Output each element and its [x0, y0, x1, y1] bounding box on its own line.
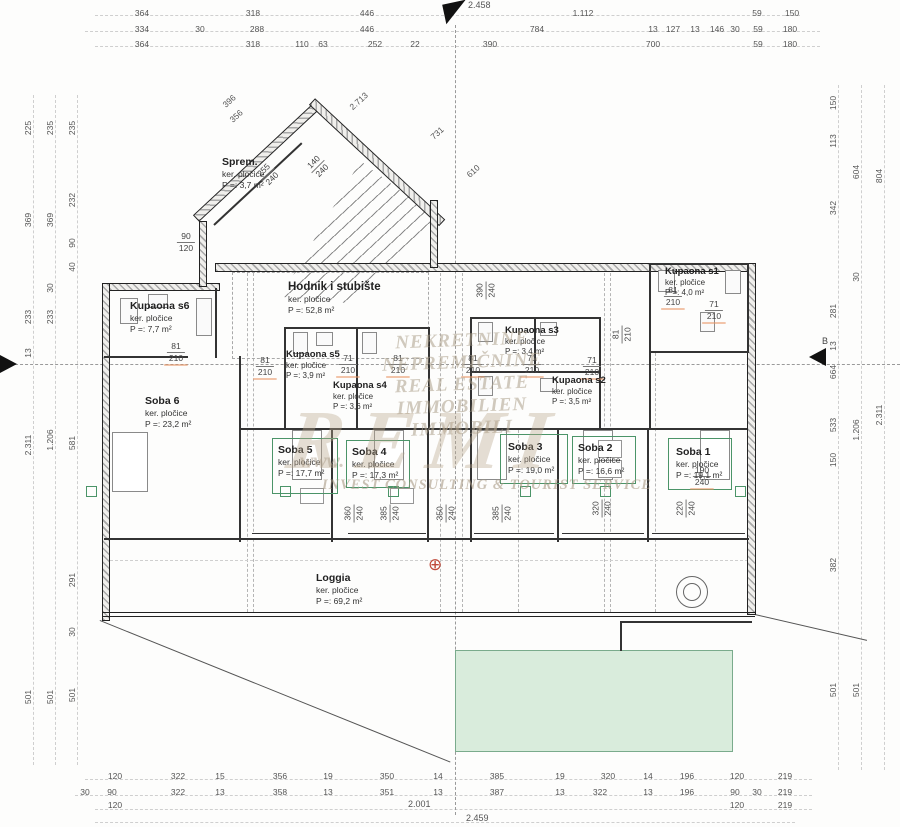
dim-guide — [33, 95, 34, 765]
dim-label: 356 — [273, 771, 287, 781]
dim-label: 322 — [171, 787, 185, 797]
dim-label: 90 — [107, 787, 116, 797]
dim-label: 281 — [828, 304, 838, 318]
section-label-b: B — [822, 336, 828, 346]
dim-label: 291 — [67, 573, 77, 587]
terrace-step — [620, 621, 752, 623]
dim-label: 235 — [67, 121, 77, 135]
wall-left — [102, 283, 110, 621]
dim-label: 533 — [828, 418, 838, 432]
dim-label: 63 — [318, 39, 327, 49]
floor-plan: Zeleni krov P =: 29,8 m² ⊕ Sprem. ker. p… — [0, 0, 900, 827]
dim-label: 604 — [851, 165, 861, 179]
dim-label: 342 — [828, 201, 838, 215]
dim-label: 382 — [828, 558, 838, 572]
window-dim: 350240 — [436, 506, 457, 520]
wall-wing-stub-right — [430, 200, 438, 268]
opening-dim: 90120 — [179, 232, 193, 253]
door-dim: 81210 — [258, 356, 272, 377]
dim-label: 219 — [778, 771, 792, 781]
watermark-prefix: www. — [300, 450, 344, 473]
dim-label: 350 — [380, 771, 394, 781]
dim-label: 232 — [67, 193, 77, 207]
room-label-kupaona-s5: Kupaona s5 ker. pločice P =: 3,9 m² — [286, 349, 340, 381]
dim-label: 30 — [730, 24, 739, 34]
dim-label: 180 — [783, 24, 797, 34]
opening-dim: 140240 — [306, 154, 331, 179]
dim-label: 225 — [23, 121, 33, 135]
dim-label: 30 — [195, 24, 204, 34]
room-label-hodnik: Hodnik i stubište ker. pločice P =: 52,8… — [288, 280, 381, 316]
watermark-brand: REMI — [281, 392, 570, 489]
dim-label: 288 — [250, 24, 264, 34]
room-label-loggia: Loggia ker. pločice P =: 69,2 m² — [316, 572, 362, 606]
room-label-kupaona-s6: Kupaona s6 ker. pločice P =: 7,7 m² — [130, 300, 190, 334]
dim-label: 30 — [851, 272, 861, 281]
dim-label: 30 — [752, 787, 761, 797]
dim-label: 90 — [730, 787, 739, 797]
dim-label: 1.206 — [45, 429, 55, 450]
dim-label: 13 — [828, 341, 838, 350]
dim-label: 322 — [593, 787, 607, 797]
dim-label: 369 — [23, 213, 33, 227]
dim-label: 22 — [410, 39, 419, 49]
dim-label: 610 — [464, 163, 481, 180]
room-label-soba1: Soba 1 ker. pločice P =: 19,1 m² — [676, 446, 722, 480]
dim-total-bottom: 2.459 — [466, 813, 489, 823]
projection-line — [655, 353, 656, 612]
section-marker-top — [442, 0, 470, 24]
room-label-soba6: Soba 6 ker. pločice P =: 23,2 m² — [145, 395, 191, 429]
dim-label: 804 — [874, 169, 884, 183]
dim-label: 358 — [273, 787, 287, 797]
radiator-marker — [86, 486, 97, 497]
wall-wing-stub-left — [199, 221, 207, 287]
opening-dim: 390240 — [476, 283, 497, 297]
section-marker-right — [809, 348, 826, 366]
dim-label: 2.311 — [874, 405, 884, 426]
dim-guide — [861, 85, 862, 770]
dim-label: 150 — [828, 453, 838, 467]
dim-label: 30 — [80, 787, 89, 797]
window — [474, 533, 554, 539]
dim-label: 19 — [555, 771, 564, 781]
dim-label: 150 — [828, 96, 838, 110]
dim-label: 15 — [215, 771, 224, 781]
dim-label: 387 — [490, 787, 504, 797]
dim-label: 390 — [483, 39, 497, 49]
section-marker-left — [0, 355, 17, 373]
bath-fixture — [316, 332, 333, 346]
dim-label: 14 — [643, 771, 652, 781]
dim-label: 396 — [220, 93, 237, 110]
dim-label: 235 — [45, 121, 55, 135]
dim-label: 501 — [45, 690, 55, 704]
dim-label: 501 — [67, 688, 77, 702]
door-dim: 81210 — [466, 354, 480, 375]
dim-label: 501 — [851, 683, 861, 697]
dim-label: 19 — [323, 771, 332, 781]
dim-label: 369 — [45, 213, 55, 227]
dim-guide — [884, 85, 885, 770]
dim-label: 318 — [246, 8, 260, 18]
bath-fixture — [362, 332, 377, 354]
dim-label: 501 — [23, 690, 33, 704]
dim-label: 30 — [67, 627, 77, 636]
dim-label: 446 — [360, 8, 374, 18]
dim-label: 13 — [23, 348, 33, 357]
dim-label: 14 — [433, 771, 442, 781]
door-dim: 81210 — [391, 354, 405, 375]
window — [562, 533, 644, 539]
room-label-kupaona-s3: Kupaona s3 ker. pločice P =: 3,4 m² — [505, 325, 559, 357]
green-roof-area — [455, 650, 733, 752]
wall-s6-right — [215, 288, 217, 358]
dim-guide — [75, 795, 812, 796]
window-dim: 385240 — [380, 506, 401, 520]
dim-label: 252 — [368, 39, 382, 49]
room-label-kupaona-s1: Kupaona s1 ker. pločice P =: 4,0 m² — [665, 266, 719, 298]
window — [348, 533, 426, 539]
door-dim: 81210 — [169, 342, 183, 363]
dim-label: 120 — [730, 800, 744, 810]
door-dim: 71210 — [585, 356, 599, 377]
dim-label: 150 — [785, 8, 799, 18]
dim-guide — [77, 95, 78, 765]
dim-label: 13 — [643, 787, 652, 797]
dim-label: 120 — [730, 771, 744, 781]
window — [252, 533, 330, 539]
wall-hall-right — [649, 353, 651, 430]
dim-guide — [95, 822, 795, 823]
dim-label: 501 — [828, 683, 838, 697]
section-axis-horizontal — [0, 364, 900, 365]
dim-subtotal-bottom: 2.001 — [408, 799, 431, 809]
site-boundary-line — [755, 614, 867, 641]
dim-label: 120 — [108, 771, 122, 781]
dim-label: 110 — [295, 39, 309, 49]
bed — [112, 432, 148, 492]
dim-label: 13 — [648, 24, 657, 34]
drain-circle-inner — [683, 583, 701, 601]
window-dim: 220240 — [676, 501, 697, 515]
dim-label: 59 — [753, 39, 762, 49]
dim-label: 233 — [45, 310, 55, 324]
window-dim: 360240 — [344, 506, 365, 520]
dim-label: 233 — [23, 310, 33, 324]
window-dim: 385240 — [492, 506, 513, 520]
dim-label: 13 — [433, 787, 442, 797]
site-boundary-line — [100, 620, 451, 763]
loggia-railing — [102, 612, 755, 617]
bath-fixture — [725, 270, 741, 294]
dim-label: 1.206 — [851, 419, 861, 440]
dim-label: 113 — [828, 134, 838, 148]
dim-label: 127 — [666, 24, 680, 34]
dim-label: 351 — [380, 787, 394, 797]
dim-guide — [95, 809, 812, 810]
dim-label: 219 — [778, 787, 792, 797]
dim-label: 784 — [530, 24, 544, 34]
dim-label: 318 — [246, 39, 260, 49]
dim-label: 120 — [108, 800, 122, 810]
window-dim: 320240 — [592, 501, 613, 515]
bath-fixture — [478, 322, 493, 342]
dim-label: 180 — [783, 39, 797, 49]
door-dim: 71210 — [707, 300, 721, 321]
dim-label: 2.311 — [23, 435, 33, 456]
watermark-tagline: INVEST CONSULTING & TOURIST SERVICE — [322, 477, 652, 494]
dim-guide — [95, 46, 820, 47]
room-label-sprem: Sprem. ker. pločice P =: 3,7 m² — [222, 156, 265, 190]
dim-label: 1.112 — [573, 8, 594, 18]
dim-label: 364 — [135, 39, 149, 49]
dim-label: 40 — [67, 262, 77, 271]
dim-label: 356 — [227, 108, 244, 125]
dim-label: 700 — [646, 39, 660, 49]
dim-label: 90 — [67, 238, 77, 247]
window — [652, 533, 745, 539]
dim-label: 59 — [752, 8, 761, 18]
door-dim: 81210 — [612, 327, 633, 341]
door-dim: 71210 — [341, 354, 355, 375]
dim-label: 13 — [323, 787, 332, 797]
wall-hodnik-left — [239, 356, 241, 542]
dim-label: 59 — [753, 24, 762, 34]
survey-cross-marker: ⊕ — [428, 556, 442, 573]
dim-label: 196 — [680, 787, 694, 797]
dim-label: 731 — [428, 125, 445, 142]
terrace-step — [620, 621, 622, 651]
dim-label: 2.713 — [347, 90, 370, 112]
shower — [196, 298, 212, 336]
dim-label: 664 — [828, 365, 838, 379]
dim-label: 13 — [555, 787, 564, 797]
dim-label: 30 — [45, 283, 55, 292]
dim-label: 334 — [135, 24, 149, 34]
dim-label: 446 — [360, 24, 374, 34]
dim-label: 320 — [601, 771, 615, 781]
dim-guide — [838, 85, 839, 770]
dim-label: 385 — [490, 771, 504, 781]
dim-label: 364 — [135, 8, 149, 18]
dim-label: 13 — [215, 787, 224, 797]
dim-label: 219 — [778, 800, 792, 810]
dim-label: 146 — [710, 24, 724, 34]
dim-label: 13 — [690, 24, 699, 34]
dim-guide — [55, 95, 56, 765]
dim-label: 581 — [67, 436, 77, 450]
room-label-soba2: Soba 2 ker. pločice P =: 16,6 m² — [578, 442, 624, 476]
dim-guide — [85, 779, 812, 780]
door-dim: 71210 — [525, 354, 539, 375]
dim-total-top: 2.458 — [468, 0, 491, 10]
dim-label: 196 — [680, 771, 694, 781]
radiator-marker — [735, 486, 746, 497]
dim-label: 322 — [171, 771, 185, 781]
